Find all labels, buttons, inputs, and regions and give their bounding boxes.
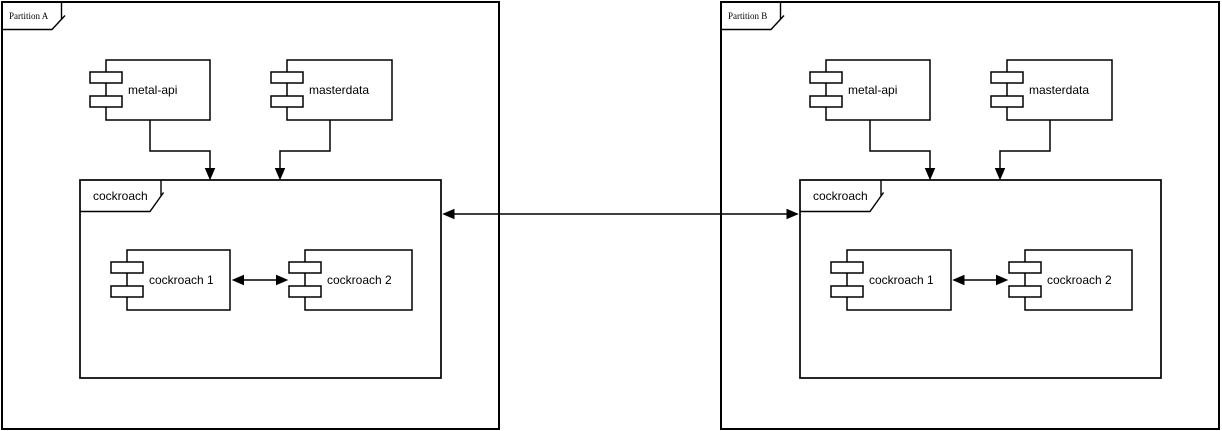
arrow-metal-api-to-cockroach-a[interactable] xyxy=(150,120,210,179)
cockroach-2-a-connector-top-icon xyxy=(289,262,321,273)
cockroach-a-label: cockroach xyxy=(93,189,148,203)
metal-api-a-connector-top-icon xyxy=(90,72,122,83)
masterdata-a-label: masterdata xyxy=(309,83,369,97)
partition-a: Partition A metal-api masterdata cockroa… xyxy=(2,2,499,429)
package-cockroach-b[interactable]: cockroach cockroach 1 cockroach 2 xyxy=(800,180,1161,378)
component-masterdata-b[interactable]: masterdata xyxy=(991,60,1112,120)
cockroach-1-b-connector-bottom-icon xyxy=(831,286,863,297)
cockroach-2-b-connector-top-icon xyxy=(1009,262,1041,273)
cockroach-2-b-label: cockroach 2 xyxy=(1047,273,1112,287)
masterdata-b-label: masterdata xyxy=(1029,83,1089,97)
arrow-metal-api-to-cockroach-b[interactable] xyxy=(870,120,930,179)
partition-a-label: Partition A xyxy=(9,11,49,21)
arrow-masterdata-to-cockroach-b[interactable] xyxy=(1000,120,1050,179)
cockroach-b-label: cockroach xyxy=(813,189,868,203)
component-cockroach-2-a[interactable]: cockroach 2 xyxy=(289,250,412,310)
cockroach-1-b-connector-top-icon xyxy=(831,262,863,273)
cockroach-2-a-connector-bottom-icon xyxy=(289,286,321,297)
masterdata-a-connector-top-icon xyxy=(271,72,303,83)
component-masterdata-a[interactable]: masterdata xyxy=(271,60,392,120)
component-metal-api-a[interactable]: metal-api xyxy=(90,60,210,120)
masterdata-b-connector-bottom-icon xyxy=(991,96,1023,107)
metal-api-b-connector-bottom-icon xyxy=(810,96,842,107)
cockroach-2-a-label: cockroach 2 xyxy=(327,273,392,287)
component-cockroach-1-b[interactable]: cockroach 1 xyxy=(831,250,951,310)
masterdata-a-connector-bottom-icon xyxy=(271,96,303,107)
partition-b-label: Partition B xyxy=(728,11,767,21)
cockroach-1-a-connector-bottom-icon xyxy=(111,286,143,297)
partition-b: Partition B metal-api masterdata cockroa… xyxy=(721,2,1219,429)
cockroach-1-b-label: cockroach 1 xyxy=(869,273,934,287)
component-metal-api-b[interactable]: metal-api xyxy=(810,60,930,120)
component-cockroach-1-a[interactable]: cockroach 1 xyxy=(111,250,230,310)
metal-api-a-connector-bottom-icon xyxy=(90,96,122,107)
cockroach-1-a-connector-top-icon xyxy=(111,262,143,273)
metal-api-b-connector-top-icon xyxy=(810,72,842,83)
uml-deployment-diagram: Partition A metal-api masterdata cockroa… xyxy=(0,0,1222,431)
masterdata-b-connector-top-icon xyxy=(991,72,1023,83)
component-cockroach-2-b[interactable]: cockroach 2 xyxy=(1009,250,1132,310)
cockroach-1-a-label: cockroach 1 xyxy=(149,273,214,287)
metal-api-b-label: metal-api xyxy=(848,83,897,97)
arrow-masterdata-to-cockroach-a[interactable] xyxy=(280,120,330,179)
metal-api-a-label: metal-api xyxy=(128,83,177,97)
cockroach-2-b-connector-bottom-icon xyxy=(1009,286,1041,297)
package-cockroach-a[interactable]: cockroach cockroach 1 cockroach 2 xyxy=(80,180,441,378)
